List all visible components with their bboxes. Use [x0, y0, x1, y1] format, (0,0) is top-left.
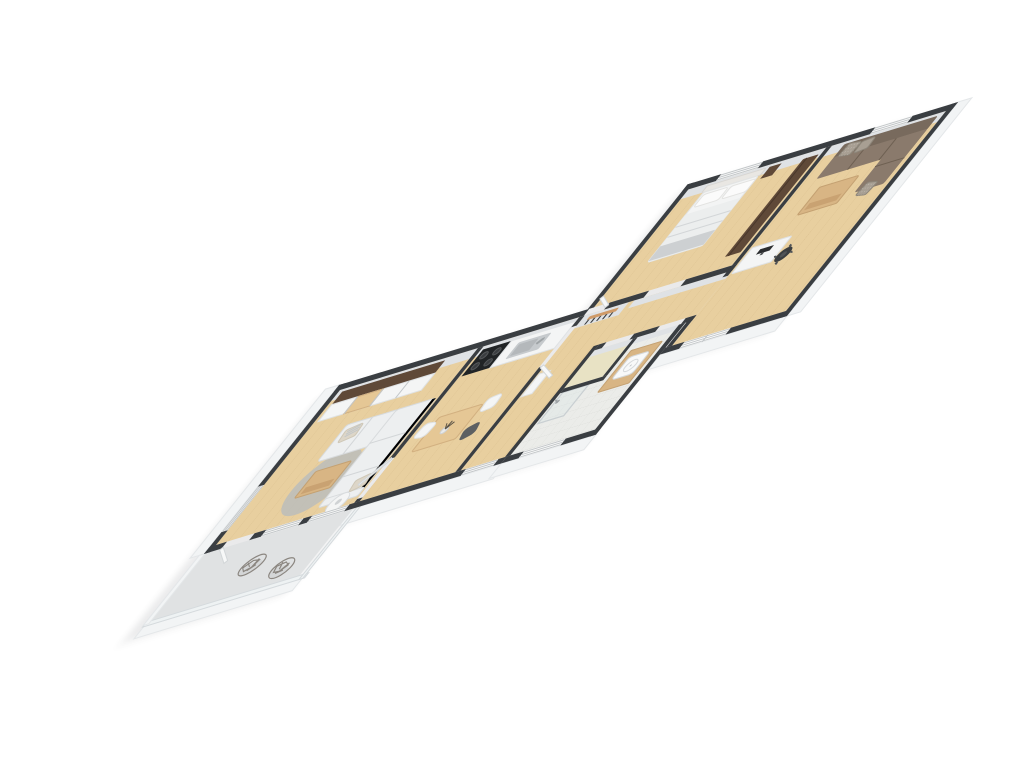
floor-plan-render [0, 0, 1024, 768]
floor-plan-page [0, 0, 1024, 768]
